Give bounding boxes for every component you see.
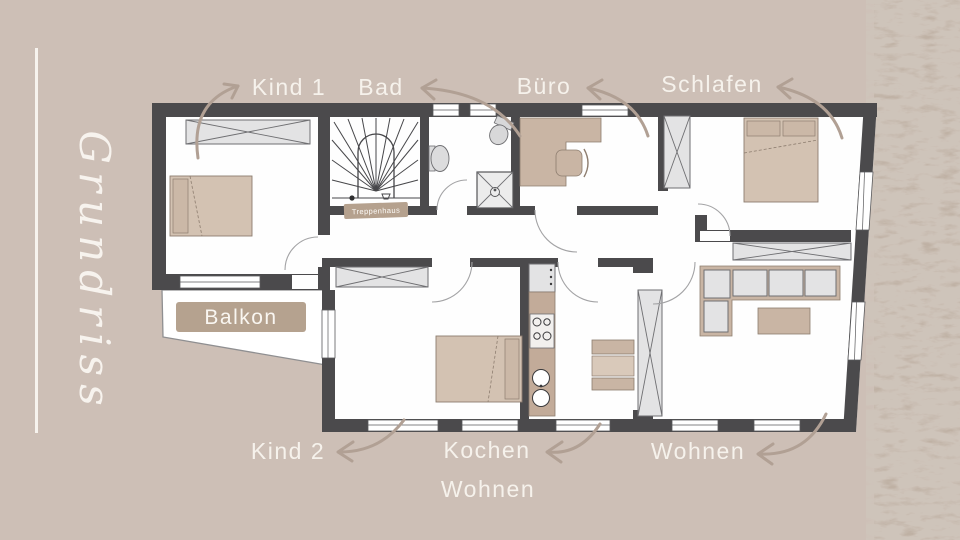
window xyxy=(433,104,459,116)
sideboard-schlafen xyxy=(733,243,851,260)
bed-schlafen xyxy=(744,118,818,202)
room-label-kochen-line2: Wohnen xyxy=(441,476,535,502)
stairs-start-dot xyxy=(349,195,354,200)
window xyxy=(672,420,718,431)
coffee-table-wohnen xyxy=(758,308,810,334)
wardrobe-kind1 xyxy=(186,120,310,144)
window xyxy=(754,420,800,431)
balkon-tag: Balkon xyxy=(176,302,306,332)
texture-band xyxy=(866,0,960,540)
room-label-balkon: Balkon xyxy=(204,306,277,329)
chair-buero xyxy=(556,150,582,176)
wardrobe-wohnen xyxy=(638,290,662,416)
room-label-wohnen: Wohnen xyxy=(651,438,745,464)
room-label-treppenhaus: Treppenhaus xyxy=(352,206,401,217)
sink-icon xyxy=(429,146,449,172)
bed-kind1 xyxy=(170,176,252,236)
window xyxy=(462,420,518,431)
floorplan-svg: Grundriss xyxy=(0,0,960,540)
room-label-kind2: Kind 2 xyxy=(251,438,325,464)
room-label-kind1: Kind 1 xyxy=(252,74,326,100)
stove-icon xyxy=(530,314,554,348)
page-title-script: Grundriss xyxy=(70,130,119,413)
window xyxy=(180,276,260,288)
dining-table xyxy=(592,340,634,390)
shower-icon xyxy=(477,172,513,208)
balkon-door-gap xyxy=(292,275,318,289)
window xyxy=(322,310,335,358)
treppenhaus-tag: Treppenhaus xyxy=(344,202,408,219)
window xyxy=(556,420,610,431)
room-label-kochen-line1: Kochen xyxy=(443,437,530,463)
kitchen-counter xyxy=(529,264,555,416)
wardrobe-schlafen xyxy=(664,116,690,188)
room-label-schlafen: Schlafen xyxy=(661,71,763,97)
window xyxy=(582,105,628,116)
room-label-bad: Bad xyxy=(358,74,403,100)
room-label-buero: Büro xyxy=(517,73,572,99)
bed-kind2 xyxy=(436,336,522,402)
window xyxy=(470,104,496,116)
wardrobe-kind2 xyxy=(336,267,428,287)
schlafen-door-gap xyxy=(700,231,730,241)
floorplan-page: Grundriss xyxy=(0,0,960,540)
accent-line xyxy=(35,48,38,433)
